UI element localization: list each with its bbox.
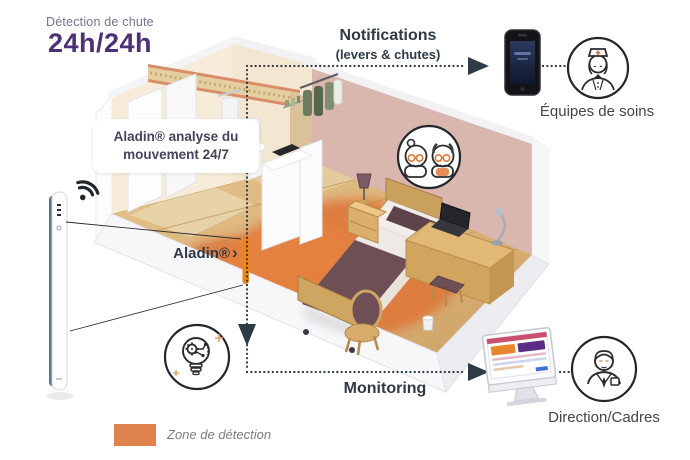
arrow-down-icon: [238, 324, 256, 346]
infographic-canvas: Détection de chute 24h/24h Aladin® analy…: [0, 0, 690, 460]
sensor-device: [46, 192, 74, 400]
towel: [222, 98, 238, 120]
legend-label: Zone de détection: [167, 427, 271, 442]
aladin-pointer-icon: ›: [232, 243, 238, 263]
sensor-bar: [243, 237, 250, 284]
elderly-couple-icon: [398, 126, 460, 188]
page-title: 24h/24h: [48, 28, 152, 59]
director-icon: [572, 337, 636, 401]
nurse-icon: [568, 38, 628, 98]
page-subtitle: Détection de chute: [46, 15, 154, 29]
legend-swatch: [114, 424, 156, 446]
innovation-bulb-icon: [165, 325, 229, 389]
analysis-note-line2: mouvement 24/7: [123, 146, 229, 164]
analysis-note-line1: Aladin® analyse du: [114, 128, 239, 146]
notifications-title: Notifications: [298, 27, 478, 45]
notifications-subtitle: (levers & chutes): [298, 47, 478, 62]
smartphone-icon: [505, 30, 540, 95]
waste-bin: [423, 316, 433, 330]
monitoring-title: Monitoring: [295, 380, 475, 398]
analysis-note: Aladin® analyse du mouvement 24/7: [93, 119, 259, 173]
direction-label: Direction/Cadres: [514, 409, 690, 426]
aladin-sensor-label: Aladin®: [138, 245, 230, 262]
monitor-icon: [482, 327, 558, 408]
care-team-label: Équipes de soins: [507, 103, 687, 120]
